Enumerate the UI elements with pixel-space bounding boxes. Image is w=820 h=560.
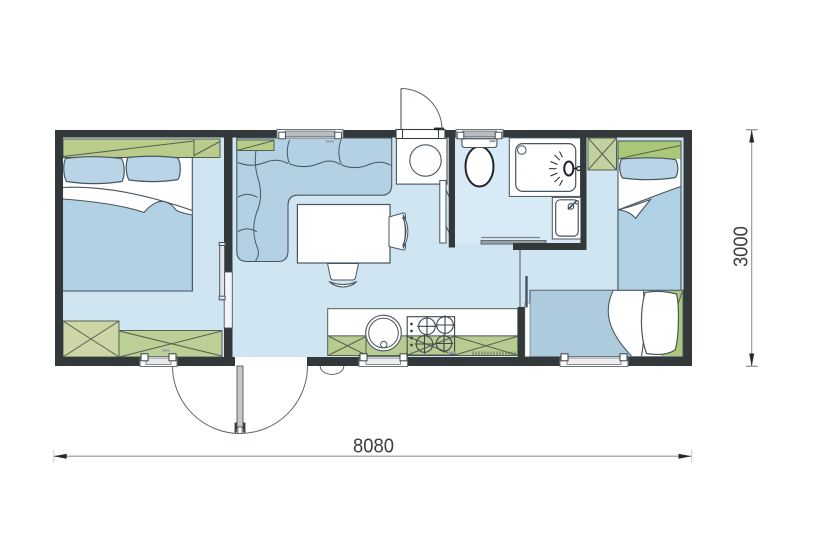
svg-text:3000: 3000 — [731, 226, 753, 267]
svg-text:8080: 8080 — [353, 436, 394, 458]
